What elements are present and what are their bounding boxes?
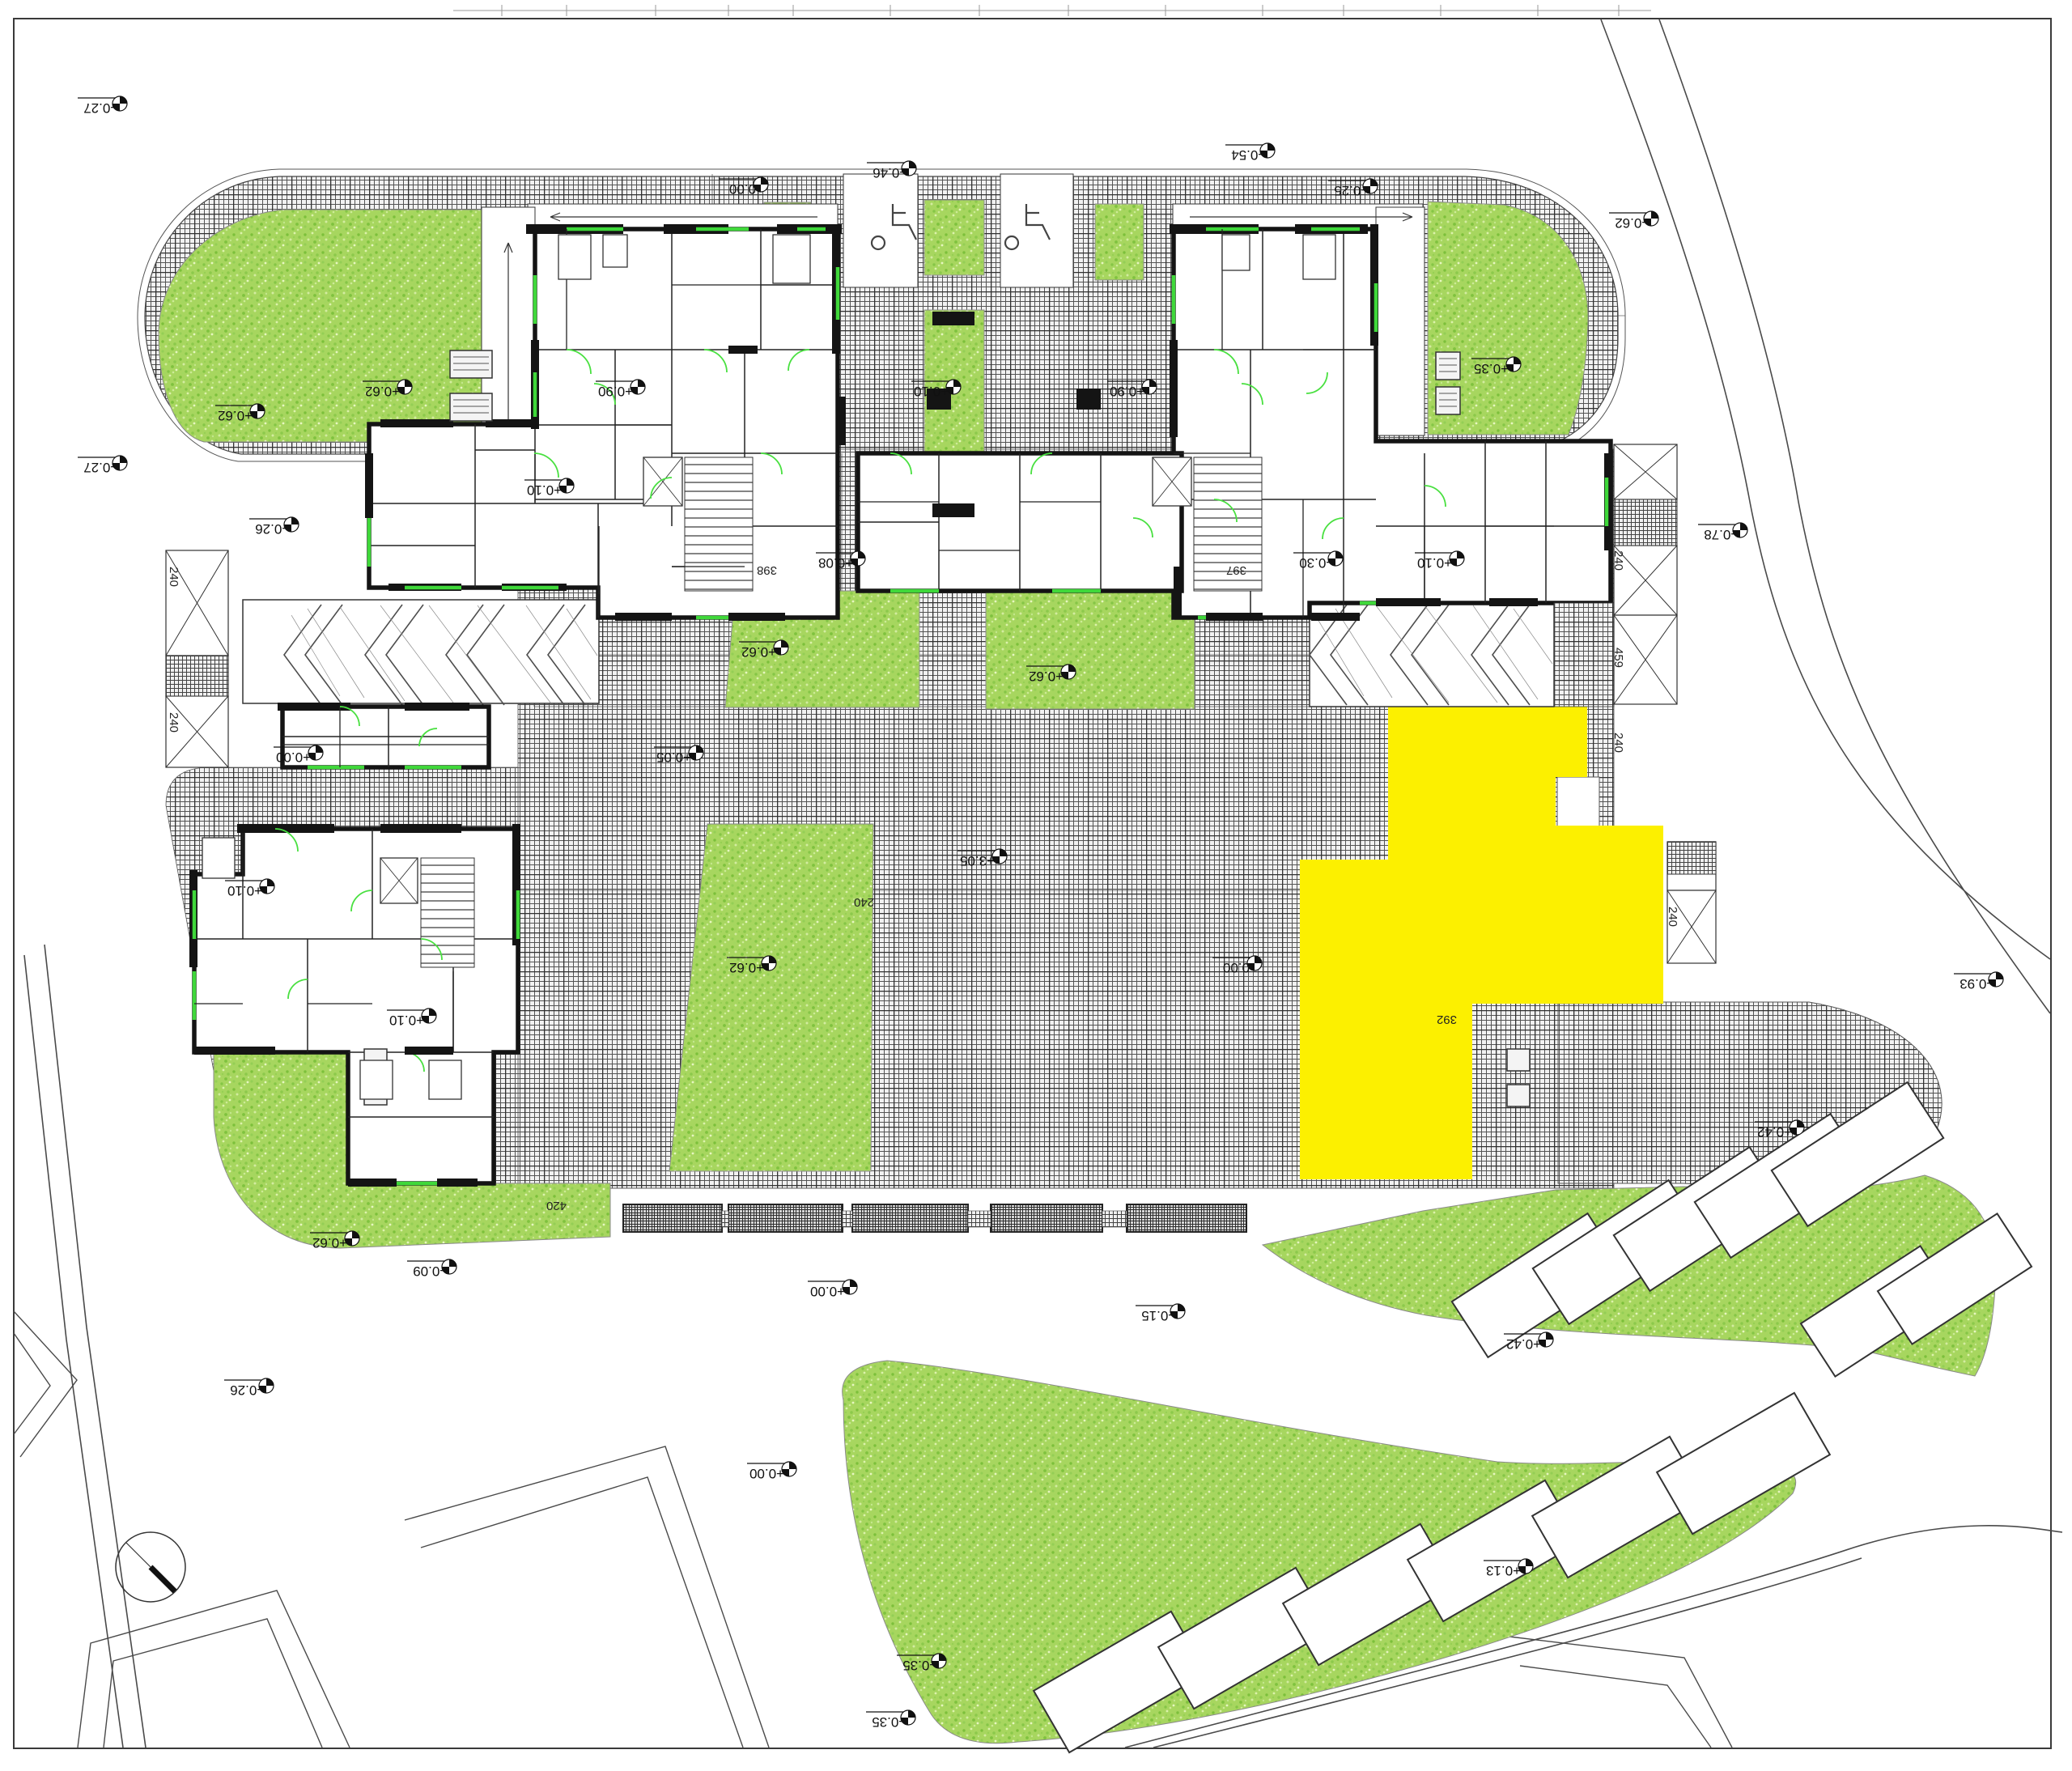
svg-text:+0.10: +0.10 [914, 384, 949, 399]
svg-text:459: 459 [1611, 648, 1625, 668]
svg-text:+0.35: +0.35 [1474, 361, 1509, 376]
svg-text:+0.62: +0.62 [365, 384, 400, 399]
svg-text:397: 397 [1226, 563, 1246, 577]
svg-text:0.00: 0.00 [1223, 960, 1250, 975]
svg-text:+0.00: +0.00 [749, 1466, 784, 1481]
svg-text:+0.62: +0.62 [218, 408, 253, 423]
svg-text:+0.62: +0.62 [729, 960, 764, 975]
svg-text:+0.10: +0.10 [1417, 555, 1452, 571]
svg-text:+0.90: +0.90 [1110, 384, 1144, 399]
svg-text:+0.90: +0.90 [598, 384, 633, 399]
svg-text:+0.42: +0.42 [1506, 1336, 1541, 1352]
svg-text:+0.10: +0.10 [227, 883, 262, 898]
svg-text:-0.27: -0.27 [83, 460, 115, 475]
svg-text:-0.30: -0.30 [1299, 555, 1331, 571]
svg-text:+0.00: +0.00 [810, 1284, 845, 1299]
svg-text:-0.62: -0.62 [1615, 215, 1646, 231]
svg-text:-0.93: -0.93 [1959, 976, 1991, 992]
svg-text:-0.26: -0.26 [255, 521, 287, 537]
svg-text:+0.00: +0.00 [276, 750, 311, 765]
svg-text:+0.42: +0.42 [1757, 1124, 1792, 1140]
svg-text:-0.35: -0.35 [902, 1658, 934, 1673]
svg-text:392: 392 [1437, 1013, 1457, 1026]
svg-text:240: 240 [1666, 907, 1679, 927]
svg-text:+0.62: +0.62 [741, 644, 776, 660]
svg-text:240: 240 [1611, 733, 1625, 753]
svg-text:240: 240 [167, 567, 180, 587]
svg-text:-0.26: -0.26 [230, 1382, 261, 1398]
svg-text:398: 398 [757, 563, 777, 577]
svg-text:-0.35: -0.35 [872, 1714, 903, 1730]
svg-text:-0.15: -0.15 [1141, 1308, 1173, 1323]
svg-text:-0.25: -0.25 [1334, 183, 1365, 198]
svg-text:240: 240 [167, 712, 180, 733]
svg-text:-0.46: -0.46 [873, 165, 904, 180]
svg-text:+0.10: +0.10 [527, 482, 562, 498]
svg-text:+3.05: +3.05 [960, 853, 995, 869]
svg-text:-0.27: -0.27 [83, 100, 115, 116]
svg-text:+0.62: +0.62 [1029, 669, 1064, 684]
svg-text:+0.62: +0.62 [312, 1235, 347, 1251]
svg-text:240: 240 [854, 895, 874, 909]
svg-text:+0.05: +0.05 [656, 750, 691, 765]
svg-text:0.00: 0.00 [729, 181, 756, 197]
svg-text:-0.54: -0.54 [1231, 147, 1263, 163]
svg-text:+0.13: +0.13 [1486, 1563, 1521, 1578]
svg-text:+0.08: +0.08 [818, 555, 853, 571]
svg-text:+0.10: +0.10 [389, 1013, 424, 1028]
svg-text:-0.78: -0.78 [1704, 527, 1735, 542]
svg-text:240: 240 [1611, 550, 1625, 571]
svg-text:420: 420 [546, 1199, 567, 1213]
svg-text:-0.09: -0.09 [413, 1263, 444, 1279]
